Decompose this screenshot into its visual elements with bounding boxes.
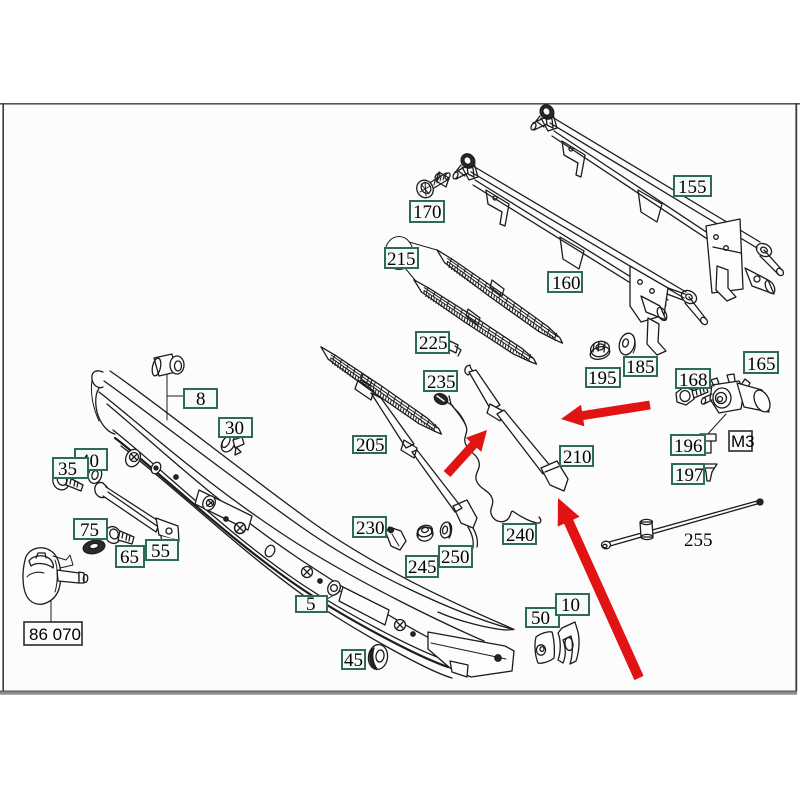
svg-text:165: 165	[747, 354, 776, 375]
svg-text:168: 168	[679, 370, 708, 391]
svg-text:240: 240	[506, 525, 535, 546]
svg-text:255: 255	[684, 530, 713, 551]
svg-text:35: 35	[58, 459, 77, 480]
svg-text:196: 196	[674, 436, 703, 457]
svg-text:235: 235	[427, 372, 456, 393]
svg-text:8: 8	[196, 389, 206, 410]
svg-text:245: 245	[408, 557, 437, 578]
svg-text:50: 50	[531, 608, 550, 629]
svg-text:86 070: 86 070	[29, 625, 81, 644]
svg-text:75: 75	[80, 520, 99, 541]
svg-text:55: 55	[151, 541, 170, 562]
svg-text:45: 45	[344, 650, 363, 671]
svg-text:170: 170	[413, 202, 442, 223]
svg-text:30: 30	[225, 418, 244, 439]
svg-text:205: 205	[356, 435, 385, 456]
svg-text:210: 210	[563, 447, 592, 468]
svg-text:185: 185	[626, 357, 655, 378]
svg-text:M3: M3	[731, 432, 755, 451]
svg-text:65: 65	[120, 547, 139, 568]
svg-text:197: 197	[675, 465, 704, 486]
svg-text:10: 10	[561, 595, 580, 616]
svg-text:215: 215	[387, 249, 416, 270]
svg-text:5: 5	[306, 594, 316, 615]
svg-text:195: 195	[588, 368, 617, 389]
svg-text:225: 225	[419, 333, 448, 354]
svg-text:230: 230	[356, 518, 385, 539]
svg-text:250: 250	[441, 547, 470, 568]
svg-text:155: 155	[678, 177, 707, 198]
svg-text:160: 160	[552, 273, 581, 294]
